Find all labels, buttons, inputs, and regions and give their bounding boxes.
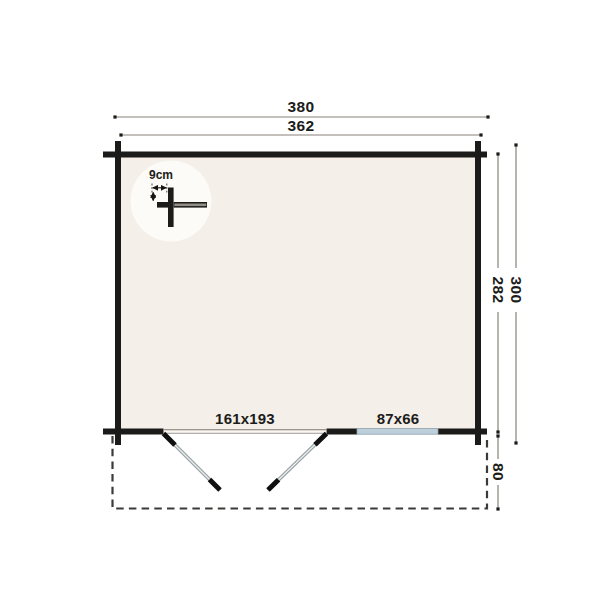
dim-dot (496, 507, 499, 510)
dim-inner-height-label: 282 (490, 277, 507, 304)
joint-right-arm-core (174, 204, 206, 207)
dim-inner-width-label: 362 (288, 117, 315, 134)
joint-vertical-log (168, 188, 174, 228)
dim-dot (113, 115, 116, 118)
floor-plan-page: 9cm (0, 0, 610, 610)
dim-dot (496, 430, 499, 433)
joint-left-stub (157, 202, 168, 208)
dim-outer-width-label: 380 (288, 98, 315, 115)
wall-thickness-label: 9cm (149, 168, 173, 182)
window-glass (357, 429, 438, 435)
door-size-label: 161x193 (215, 410, 275, 427)
dim-dot (514, 143, 517, 146)
dim-dot (486, 115, 489, 118)
wall-detail-bubble: 9cm (131, 161, 212, 242)
dim-terrace-depth-label: 80 (490, 463, 507, 481)
dim-outer-height-label: 300 (508, 277, 525, 304)
dim-dot (514, 441, 517, 444)
dim-dot (496, 152, 499, 155)
window-size-label: 87x66 (377, 410, 420, 427)
dim-dot (496, 434, 499, 437)
dim-dot (119, 133, 122, 136)
floor-plan-drawing: 9cm (0, 0, 610, 610)
dim-dot (479, 133, 482, 136)
